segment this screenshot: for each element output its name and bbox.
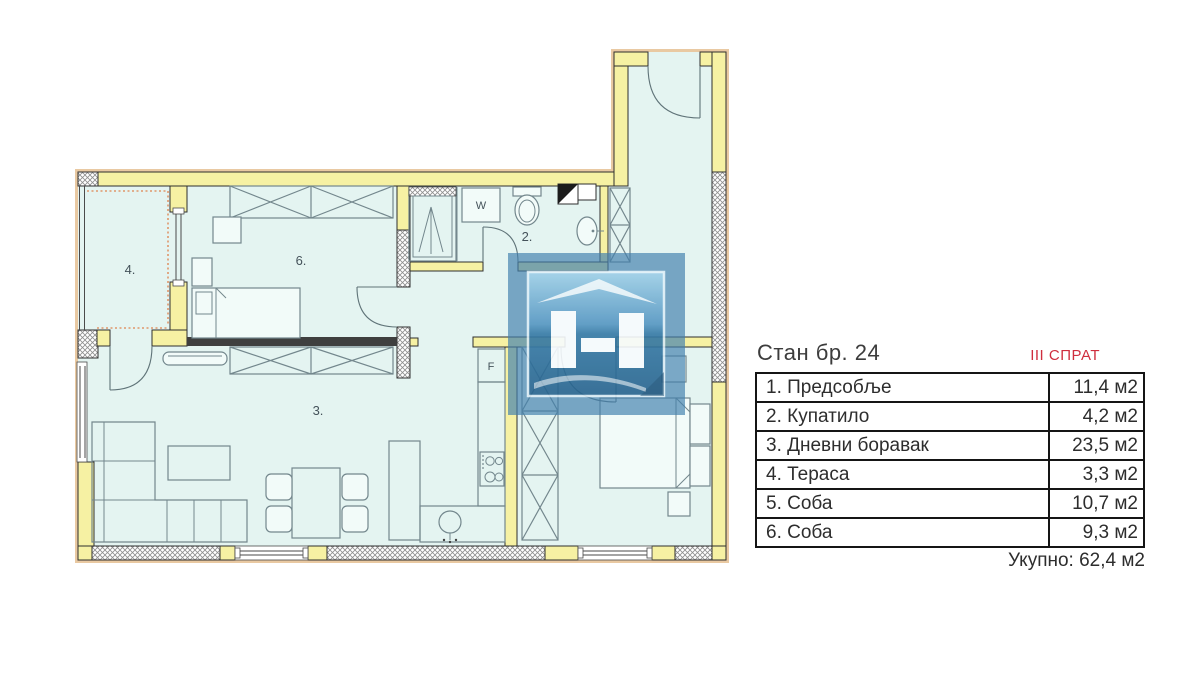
total-area: Укупно: 62,4 м2	[755, 550, 1145, 572]
room-name: 2. Купатило	[757, 403, 1048, 430]
apartment-title: Стан бр. 24	[757, 340, 880, 366]
side-table	[213, 217, 241, 243]
table-row: 5. Соба 10,7 м2	[757, 490, 1143, 519]
label-terrace: 4.	[125, 262, 136, 277]
floor-label: III СПРАТ	[955, 347, 1100, 364]
washer-label: W	[476, 200, 487, 212]
room-name: 5. Соба	[757, 490, 1048, 517]
room-area: 23,5 м2	[1048, 432, 1143, 459]
label-bedroom6: 6.	[296, 253, 307, 268]
room-area: 4,2 м2	[1048, 403, 1143, 430]
screenshot-root: W	[0, 0, 1200, 675]
table-row: 2. Купатило 4,2 м2	[757, 403, 1143, 432]
table-row: 4. Тераса 3,3 м2	[757, 461, 1143, 490]
floor-plan: W	[0, 0, 1200, 675]
washing-machine: W	[462, 188, 500, 222]
label-living-room: 3.	[313, 403, 324, 418]
fridge-label: F	[488, 361, 495, 373]
table-row: 1. Предсобље 11,4 м2	[757, 374, 1143, 403]
room-name: 1. Предсобље	[757, 374, 1048, 401]
room-area: 9,3 м2	[1048, 519, 1143, 546]
label-bathroom: 2.	[522, 229, 533, 244]
room-area: 10,7 м2	[1048, 490, 1143, 517]
table-row: 6. Соба 9,3 м2	[757, 519, 1143, 546]
room-name: 4. Тераса	[757, 461, 1048, 488]
bed-single	[192, 288, 300, 338]
nightstand-bottom	[668, 492, 690, 516]
table-row: 3. Дневни боравак 23,5 м2	[757, 432, 1143, 461]
shelf	[163, 352, 227, 365]
room-area: 3,3 м2	[1048, 461, 1143, 488]
room-name: 3. Дневни боравак	[757, 432, 1048, 459]
watermark-logo	[508, 253, 685, 415]
room-areas-table: 1. Предсобље 11,4 м2 2. Купатило 4,2 м2 …	[755, 372, 1145, 548]
toilet	[513, 187, 541, 225]
room-area: 11,4 м2	[1048, 374, 1143, 401]
room-name: 6. Соба	[757, 519, 1048, 546]
nightstand	[192, 258, 212, 286]
